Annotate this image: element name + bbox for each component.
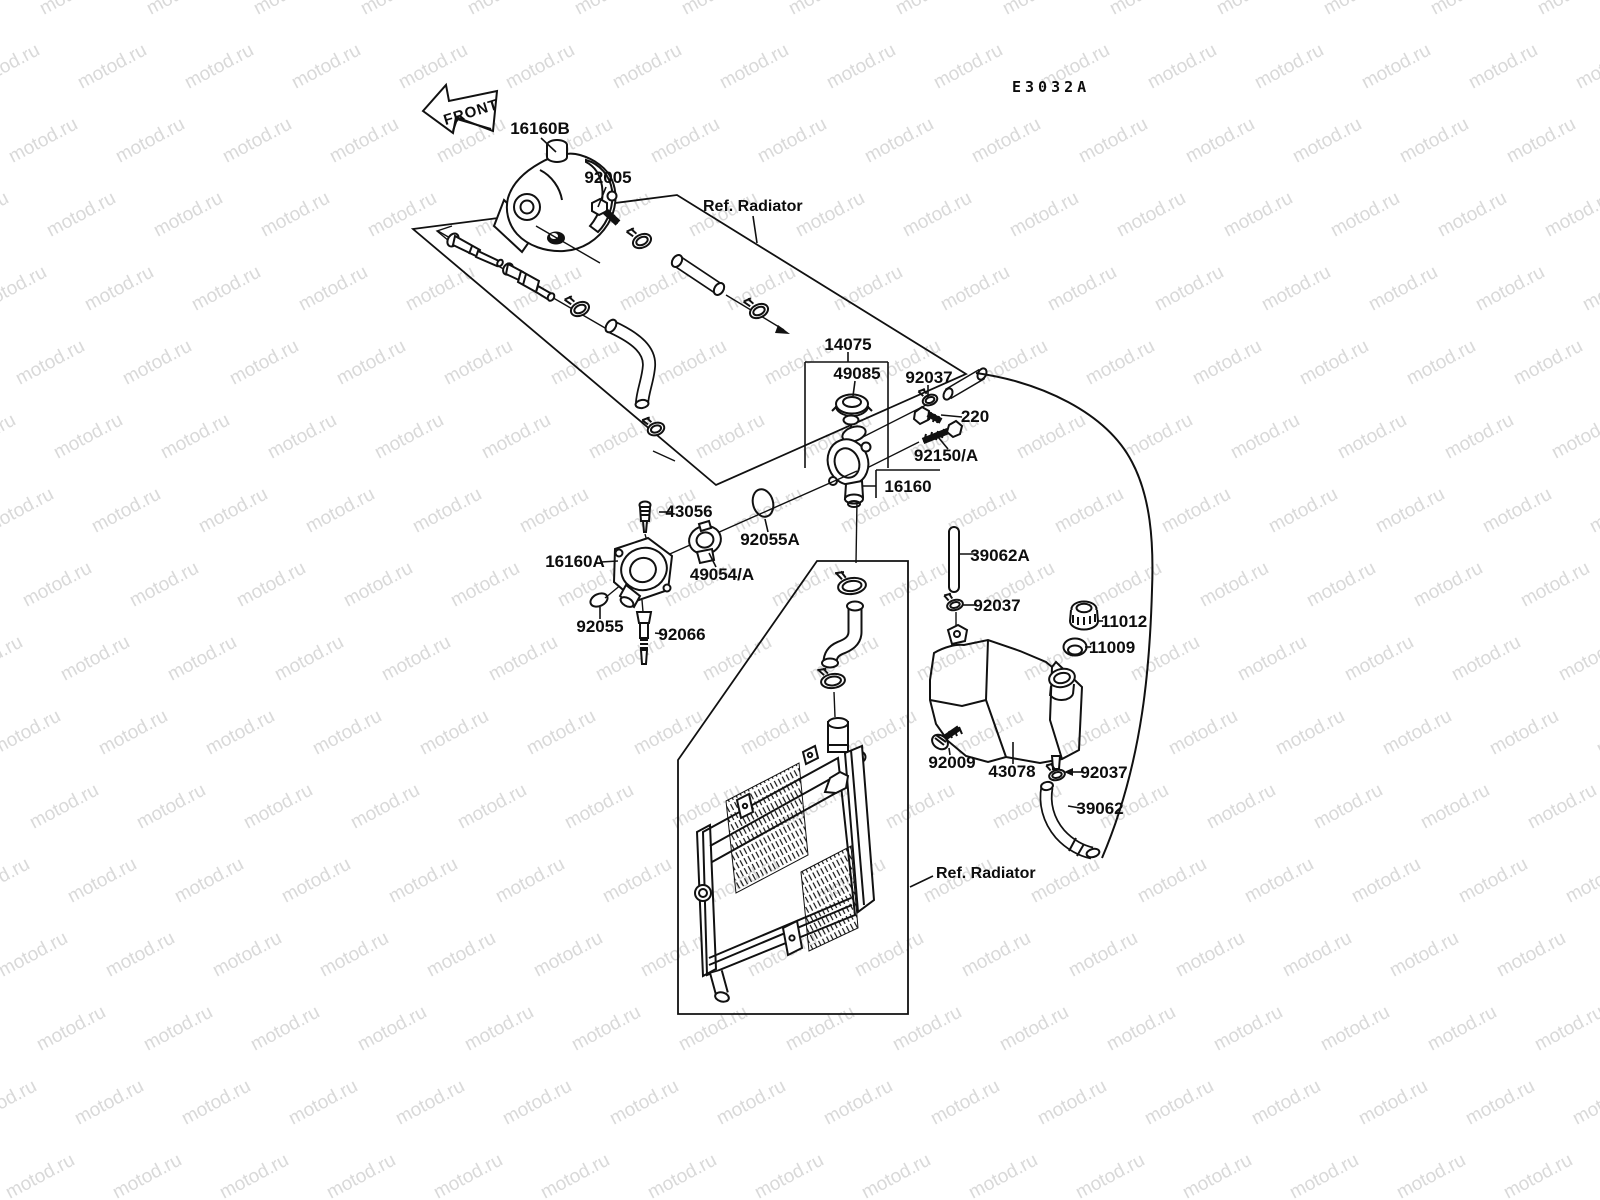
- o-ring-drawing: [750, 487, 777, 519]
- short-hose-drawing: [670, 253, 727, 297]
- joint-fitting-drawing: [445, 231, 504, 267]
- tank-seal-drawing: [1064, 639, 1087, 656]
- gasket-drawing: [588, 591, 609, 609]
- hose-clamp-icon: [626, 222, 653, 251]
- top-group-parts: [437, 222, 790, 461]
- hose-39062-drawing: [1040, 781, 1100, 859]
- label-92066: 92066: [658, 625, 705, 644]
- radiator-hook-bracket: [825, 772, 848, 793]
- hose-clamp-icon: [817, 665, 846, 689]
- label-92055a: 92055A: [740, 530, 800, 549]
- temp-sensor-drawing: [637, 612, 651, 664]
- label-220: 220: [961, 407, 989, 426]
- radiator-bracket-tab: [803, 746, 818, 764]
- filler-neck-housing-drawing: [821, 424, 874, 507]
- radiator-group: [695, 568, 874, 1003]
- top-parts-group-outline: [413, 195, 966, 485]
- thermostat-drawing: [686, 521, 724, 563]
- hose-clamp-icon: [564, 290, 591, 319]
- hose-clamp-icon: [835, 568, 867, 596]
- label-16160a: 16160A: [545, 552, 605, 571]
- label-16160b: 16160B: [510, 119, 570, 138]
- water-pump-drawing: [494, 140, 617, 252]
- label-92037-tank-bottom: 92037: [1080, 763, 1127, 782]
- z-hose-drawing: [822, 602, 863, 668]
- label-49085: 49085: [833, 364, 880, 383]
- label-11012: 11012: [1101, 612, 1147, 631]
- label-92009: 92009: [928, 753, 975, 772]
- label-92037-cap: 92037: [905, 368, 952, 387]
- radiator-drawing: [695, 718, 874, 1003]
- reserve-tank-drawing: [930, 625, 1082, 769]
- hose-39062a-drawing: [949, 527, 959, 592]
- label-92055: 92055: [576, 617, 623, 636]
- label-92005: 92005: [584, 168, 631, 187]
- union-fitting-drawing: [501, 262, 555, 302]
- hose-clamp-icon: [944, 590, 964, 612]
- air-bleeder-bolt-drawing: [640, 502, 651, 533]
- radiator-cap-drawing: [832, 395, 872, 430]
- label-11009: 11009: [1089, 638, 1135, 657]
- parts-diagram-page: motod.rumotod.rumotod.rumotod.rumotod.ru…: [0, 0, 1600, 1200]
- label-39062a: 39062A: [970, 546, 1030, 565]
- label-39062: 39062: [1076, 799, 1123, 818]
- bolt-220-drawing: [914, 407, 941, 424]
- label-14075: 14075: [824, 335, 871, 354]
- label-43056: 43056: [665, 502, 712, 521]
- thermostat-housing-drawing: [614, 538, 672, 609]
- label-ref-radiator-top: Ref. Radiator: [703, 198, 803, 215]
- hose-clamp-icon: [743, 292, 770, 321]
- label-92037-tank-top: 92037: [973, 596, 1020, 615]
- tank-cap-drawing: [1070, 602, 1098, 630]
- front-arrow: FRONT: [423, 85, 501, 133]
- label-ref-radiator-bottom: Ref. Radiator: [936, 865, 1036, 882]
- label-92150a: 92150/A: [914, 446, 978, 465]
- label-43078: 43078: [988, 762, 1035, 781]
- radiator-outlet-pipe: [714, 972, 730, 1003]
- diagram-code: E3032A: [1012, 78, 1090, 96]
- label-16160: 16160: [884, 477, 931, 496]
- bolt-92150-drawing: [923, 421, 962, 442]
- exploded-parts-diagram: FRONT: [0, 0, 1600, 1200]
- label-49054a: 49054/A: [690, 565, 754, 584]
